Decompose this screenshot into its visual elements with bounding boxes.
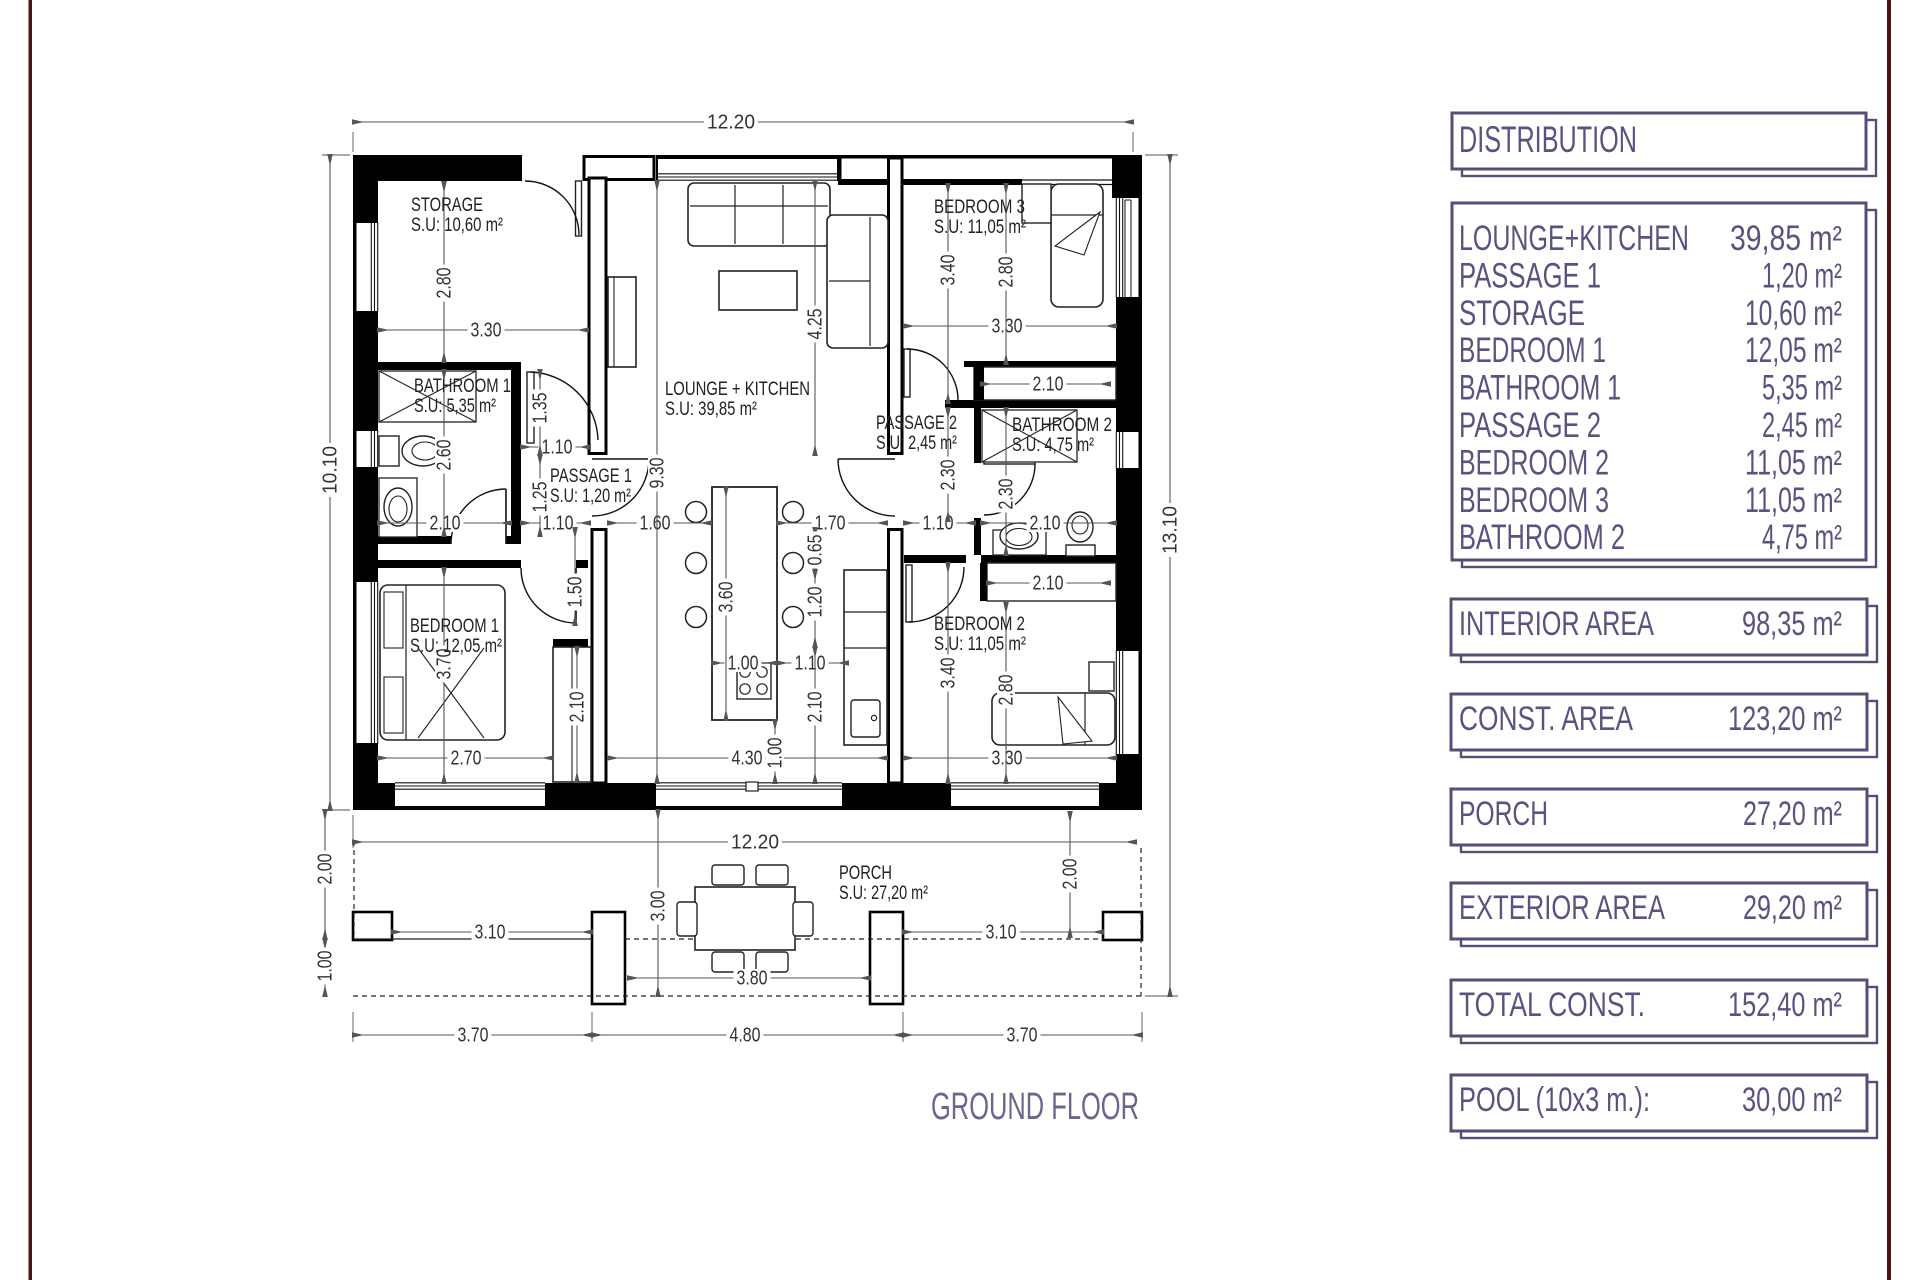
svg-text:3.40: 3.40	[938, 255, 960, 286]
svg-text:BATHROOM 2: BATHROOM 2	[1459, 518, 1625, 557]
svg-text:0.65: 0.65	[805, 535, 827, 566]
svg-text:PASSAGE 1: PASSAGE 1	[1459, 256, 1601, 295]
svg-text:POOL (10x3 m.):: POOL (10x3 m.):	[1459, 1081, 1650, 1119]
svg-text:S.U: 4,75 m²: S.U: 4,75 m²	[1012, 435, 1094, 456]
svg-text:4.25: 4.25	[805, 309, 827, 340]
svg-text:1.20: 1.20	[805, 587, 827, 618]
svg-text:1.10: 1.10	[543, 513, 574, 535]
svg-text:3.30: 3.30	[992, 748, 1023, 770]
svg-text:3.10: 3.10	[475, 922, 506, 944]
svg-text:PORCH: PORCH	[1459, 795, 1548, 833]
svg-text:2,45 m²: 2,45 m²	[1762, 406, 1842, 445]
svg-text:PASSAGE 1: PASSAGE 1	[550, 466, 632, 487]
svg-text:BATHROOM 1: BATHROOM 1	[414, 376, 511, 397]
svg-text:3.00: 3.00	[648, 891, 670, 922]
svg-text:39,85 m²: 39,85 m²	[1730, 219, 1842, 258]
svg-text:3.30: 3.30	[471, 320, 502, 342]
svg-text:BEDROOM 2: BEDROOM 2	[1459, 443, 1609, 482]
svg-text:2.80: 2.80	[996, 257, 1018, 288]
svg-text:1.00: 1.00	[728, 653, 759, 675]
svg-text:3.80: 3.80	[737, 968, 768, 990]
svg-text:30,00 m²: 30,00 m²	[1742, 1081, 1842, 1119]
svg-text:11,05 m²: 11,05 m²	[1745, 443, 1842, 482]
svg-text:BEDROOM 1: BEDROOM 1	[410, 616, 499, 637]
svg-text:1.60: 1.60	[640, 513, 671, 535]
svg-text:PASSAGE 2: PASSAGE 2	[876, 413, 957, 434]
svg-text:2.30: 2.30	[996, 479, 1018, 510]
svg-text:10.10: 10.10	[320, 446, 342, 494]
svg-text:123,20 m²: 123,20 m²	[1728, 700, 1842, 738]
svg-text:2.70: 2.70	[451, 748, 482, 770]
svg-text:PASSAGE 2: PASSAGE 2	[1459, 406, 1601, 445]
svg-text:LOUNGE + KITCHEN: LOUNGE + KITCHEN	[665, 379, 810, 400]
svg-text:1.00: 1.00	[315, 951, 337, 982]
svg-text:S.U: 39,85 m²: S.U: 39,85 m²	[665, 399, 757, 420]
svg-text:11,05 m²: 11,05 m²	[1745, 481, 1842, 520]
svg-text:3.30: 3.30	[992, 316, 1023, 338]
svg-text:5,35 m²: 5,35 m²	[1762, 369, 1842, 408]
svg-text:10,60 m²: 10,60 m²	[1745, 294, 1842, 333]
svg-text:BEDROOM 3: BEDROOM 3	[1459, 481, 1609, 520]
svg-text:2.10: 2.10	[805, 692, 827, 723]
svg-text:2.00: 2.00	[315, 854, 337, 885]
svg-text:S.U: 11,05 m²: S.U: 11,05 m²	[934, 634, 1026, 655]
svg-text:3.10: 3.10	[986, 922, 1017, 944]
svg-text:12,05 m²: 12,05 m²	[1745, 331, 1842, 370]
svg-text:S.U: 5,35 m²: S.U: 5,35 m²	[414, 396, 496, 417]
svg-text:2.60: 2.60	[434, 440, 456, 471]
svg-text:1.10: 1.10	[542, 437, 573, 459]
svg-text:1.70: 1.70	[815, 513, 846, 535]
svg-text:2.10: 2.10	[1030, 513, 1061, 535]
svg-text:S.U: 10,60 m²: S.U: 10,60 m²	[411, 215, 503, 236]
svg-text:13.10: 13.10	[1160, 506, 1182, 554]
svg-text:1.00: 1.00	[765, 738, 787, 769]
svg-text:1.10: 1.10	[795, 653, 826, 675]
svg-text:S.U: 11,05 m²: S.U: 11,05 m²	[934, 217, 1026, 238]
svg-text:STORAGE: STORAGE	[411, 195, 483, 216]
svg-text:INTERIOR AREA: INTERIOR AREA	[1459, 605, 1654, 643]
svg-text:LOUNGE+KITCHEN: LOUNGE+KITCHEN	[1459, 219, 1689, 258]
svg-text:4.30: 4.30	[732, 748, 763, 770]
svg-text:3.70: 3.70	[1007, 1025, 1038, 1047]
svg-text:4.80: 4.80	[730, 1025, 761, 1047]
svg-text:CONST. AREA: CONST. AREA	[1459, 700, 1633, 738]
svg-text:1.25: 1.25	[530, 482, 552, 513]
svg-text:GROUND FLOOR: GROUND FLOOR	[931, 1086, 1139, 1128]
svg-text:1.35: 1.35	[530, 393, 552, 424]
svg-text:12.20: 12.20	[731, 832, 779, 854]
svg-text:BATHROOM 2: BATHROOM 2	[1012, 415, 1112, 436]
svg-text:S.U: 12,05 m²: S.U: 12,05 m²	[410, 636, 502, 657]
svg-text:EXTERIOR AREA: EXTERIOR AREA	[1459, 889, 1665, 927]
svg-text:98,35 m²: 98,35 m²	[1742, 605, 1842, 643]
svg-text:9.30: 9.30	[647, 458, 669, 489]
svg-text:3.70: 3.70	[458, 1025, 489, 1047]
svg-text:BEDROOM 2: BEDROOM 2	[934, 614, 1025, 635]
svg-text:BEDROOM 3: BEDROOM 3	[934, 197, 1025, 218]
svg-text:DISTRIBUTION: DISTRIBUTION	[1459, 119, 1637, 160]
svg-text:BEDROOM 1: BEDROOM 1	[1459, 331, 1606, 370]
svg-text:1.10: 1.10	[923, 513, 954, 535]
svg-text:TOTAL CONST.: TOTAL CONST.	[1459, 986, 1645, 1024]
svg-text:S.U: 1,20 m²: S.U: 1,20 m²	[550, 486, 631, 507]
svg-text:2.10: 2.10	[567, 692, 589, 723]
svg-text:2.10: 2.10	[430, 513, 461, 535]
svg-text:2.10: 2.10	[1033, 374, 1064, 396]
svg-text:4,75 m²: 4,75 m²	[1762, 518, 1842, 557]
svg-text:1,20 m²: 1,20 m²	[1762, 256, 1842, 295]
svg-text:152,40 m²: 152,40 m²	[1728, 986, 1842, 1024]
svg-text:2.00: 2.00	[1060, 859, 1082, 890]
svg-text:STORAGE: STORAGE	[1459, 294, 1585, 333]
svg-text:2.30: 2.30	[938, 460, 960, 491]
svg-text:PORCH: PORCH	[839, 863, 892, 884]
svg-text:3.60: 3.60	[716, 582, 738, 613]
svg-text:2.80: 2.80	[996, 675, 1018, 706]
svg-text:1.50: 1.50	[565, 577, 587, 608]
svg-text:29,20 m²: 29,20 m²	[1743, 889, 1842, 927]
svg-text:2.80: 2.80	[434, 268, 456, 299]
svg-text:2.10: 2.10	[1033, 573, 1064, 595]
svg-text:3.40: 3.40	[938, 658, 960, 689]
svg-text:BATHROOM 1: BATHROOM 1	[1459, 369, 1621, 408]
svg-text:S.U: 27,20 m²: S.U: 27,20 m²	[839, 883, 928, 904]
svg-text:27,20 m²: 27,20 m²	[1743, 795, 1842, 833]
svg-text:S.U: 2,45 m²: S.U: 2,45 m²	[876, 433, 957, 454]
svg-text:12.20: 12.20	[707, 112, 755, 134]
